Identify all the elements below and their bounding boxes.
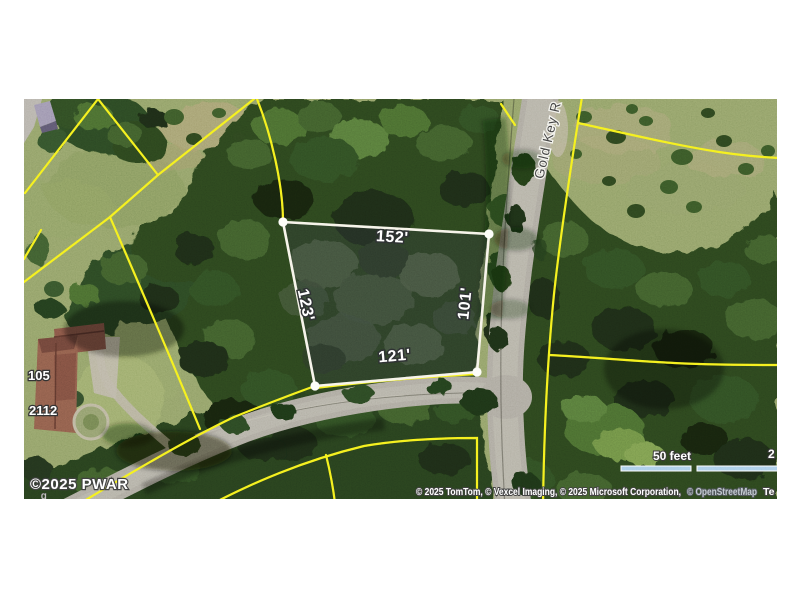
satellite-map[interactable]: 152' 123' 101' 121' Gold Key R 105 2112 …: [24, 99, 777, 499]
screenshot-page: 152' 123' 101' 121' Gold Key R 105 2112 …: [0, 0, 800, 600]
map-canvas: 152' 123' 101' 121' Gold Key R 105 2112 …: [24, 99, 777, 499]
photo-grain-overlay: [24, 99, 777, 499]
